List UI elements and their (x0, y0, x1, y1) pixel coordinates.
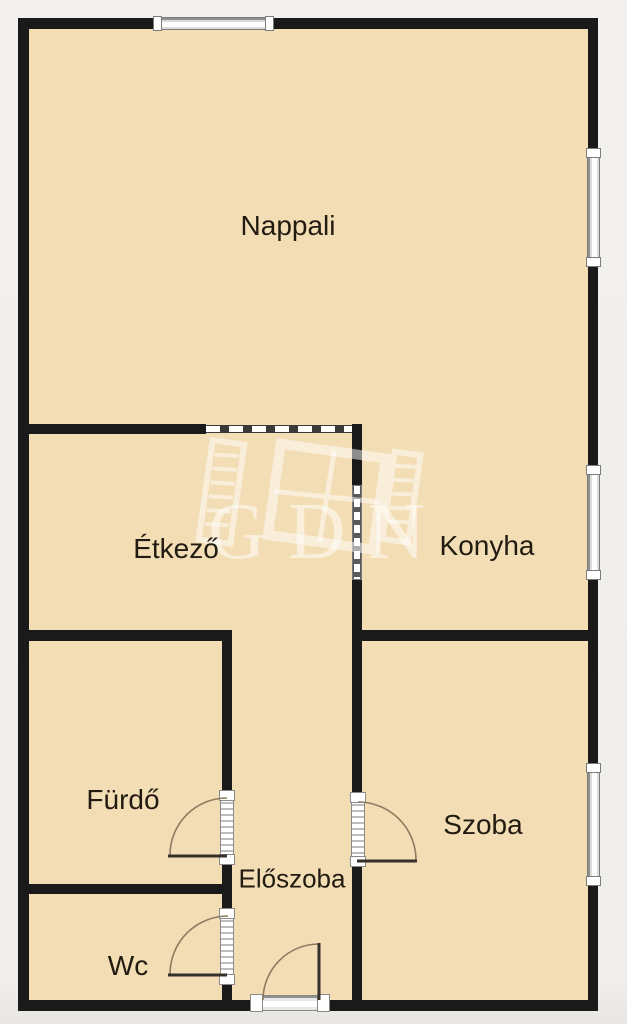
wall-furdo-corridor (222, 630, 232, 791)
right-wall-window-konyha (587, 467, 600, 578)
room-label-nappali: Nappali (241, 210, 336, 242)
wall-nappali-etkezo (18, 424, 206, 434)
outer-wall-top (18, 18, 598, 29)
wc-door-frame (220, 909, 234, 984)
furdo-door-frame (220, 791, 234, 864)
wall-corridor-right-mid (352, 580, 362, 793)
nappali-etkezo-opening (206, 425, 352, 433)
room-label-szoba: Szoba (443, 809, 522, 841)
right-wall-window-nappali (587, 150, 600, 265)
watermark-text: GDN (208, 492, 447, 572)
outer-wall-left (18, 18, 29, 1011)
wall-etkezo-konyha-upper (352, 424, 362, 485)
right-wall-window-szoba (587, 765, 600, 884)
wall-corridor-left-lower (222, 984, 232, 1000)
entrance-door-frame (251, 995, 329, 1011)
wall-etkezo-furdo (18, 630, 232, 641)
outer-wall-bottom-right (327, 1000, 598, 1011)
top-wall-window (155, 17, 272, 30)
room-label-etkezo: Étkező (133, 533, 219, 565)
wall-furdo-wc (18, 884, 232, 894)
room-label-furdo: Fürdő (86, 784, 159, 816)
wall-konyha-szoba (352, 630, 598, 641)
floor-plan: GDN Nappali Étkező Konyha Fürdő Előszoba… (0, 0, 627, 1024)
wall-corridor-right-lower (352, 866, 362, 1000)
room-label-konyha: Konyha (440, 530, 535, 562)
outer-wall-bottom-left (18, 1000, 255, 1011)
szoba-door-frame (351, 793, 365, 866)
room-label-eloszoba: Előszoba (239, 864, 346, 895)
room-label-wc: Wc (108, 950, 148, 982)
